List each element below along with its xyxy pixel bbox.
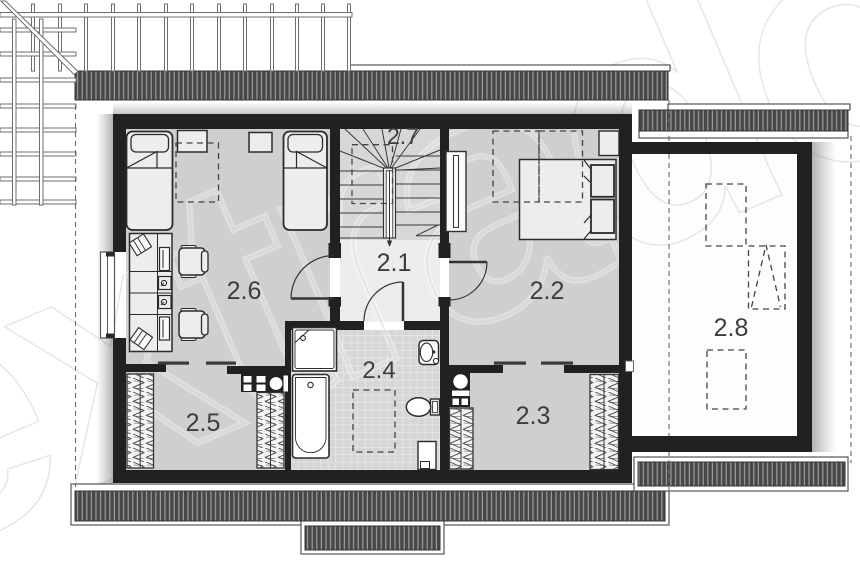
svg-text:2.2: 2.2	[530, 277, 565, 305]
svg-text:2.4: 2.4	[362, 357, 395, 384]
svg-text:2.7: 2.7	[387, 123, 419, 149]
svg-text:2.1: 2.1	[377, 249, 412, 277]
svg-text:2.5: 2.5	[186, 409, 221, 437]
svg-text:2.3: 2.3	[516, 402, 551, 430]
svg-text:2.8: 2.8	[714, 314, 749, 342]
svg-text:2.6: 2.6	[227, 277, 262, 305]
